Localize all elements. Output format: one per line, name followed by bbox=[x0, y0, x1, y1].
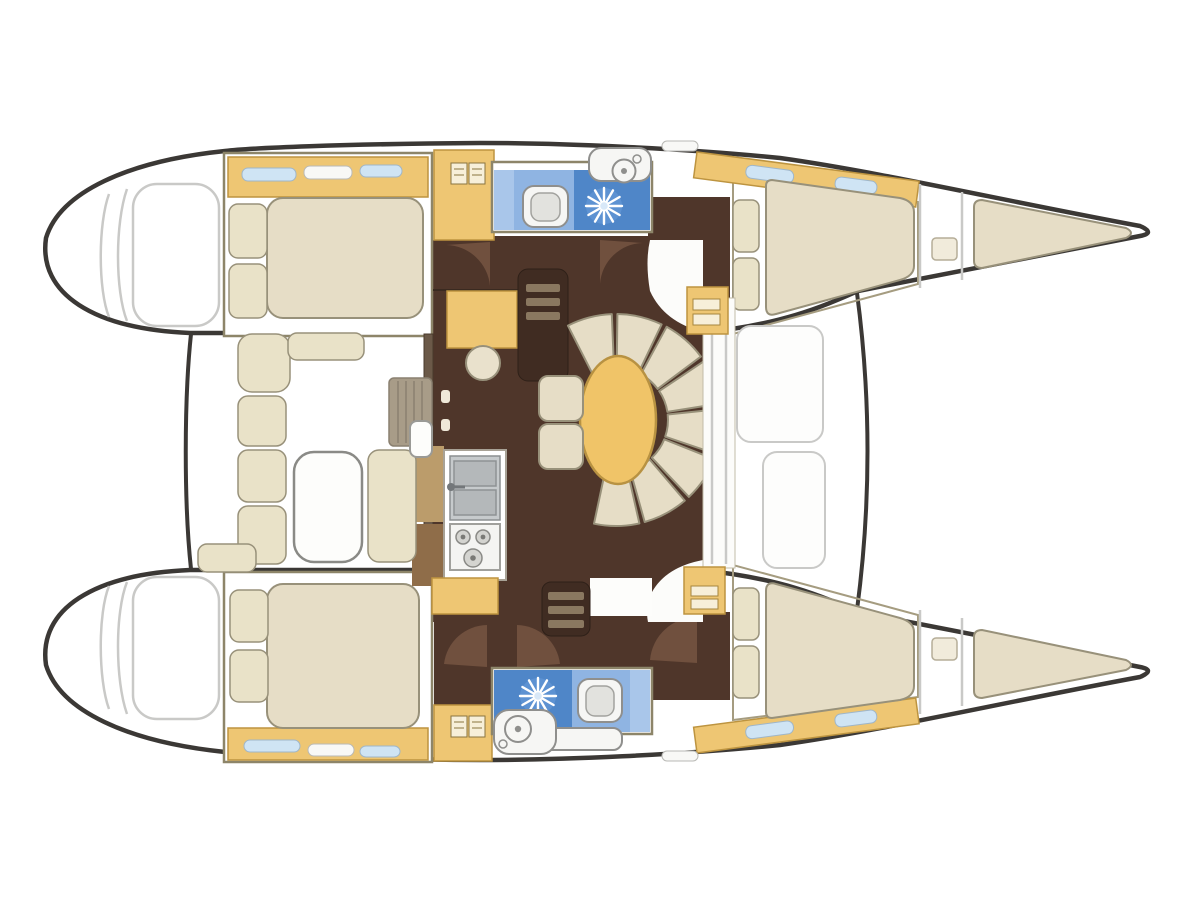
pillow bbox=[230, 650, 268, 702]
saloon-front-wall bbox=[703, 298, 735, 568]
galley-counter-wood bbox=[412, 524, 444, 586]
switch-plate bbox=[441, 419, 450, 431]
starboard-toilet-seat bbox=[586, 686, 614, 716]
starboard-fwd-berth bbox=[766, 583, 914, 718]
trampoline-panel bbox=[737, 326, 823, 442]
pillow bbox=[229, 264, 267, 318]
sink-faucet bbox=[447, 483, 455, 491]
hull-window bbox=[244, 740, 300, 752]
sink-basin bbox=[454, 461, 496, 486]
burner-center bbox=[470, 555, 476, 561]
burner-center bbox=[461, 535, 466, 540]
port-aft-cabin-bed bbox=[267, 198, 423, 318]
saloon-corner-cabinet bbox=[684, 567, 725, 614]
pillow bbox=[230, 590, 268, 642]
aft-crossbeam bbox=[186, 334, 191, 569]
catamaran-floor-plan bbox=[0, 0, 1200, 900]
cockpit-bench-cushion bbox=[238, 396, 286, 446]
cockpit-bench-top bbox=[288, 333, 364, 360]
bench-cushion bbox=[539, 424, 583, 469]
saloon-corner-cabinet bbox=[687, 287, 728, 334]
switch-plate bbox=[441, 390, 450, 403]
cockpit-bench-corner bbox=[238, 334, 290, 392]
hull-window bbox=[242, 168, 296, 181]
berth-cushion bbox=[733, 646, 759, 698]
pillow bbox=[229, 204, 267, 258]
basin-drain bbox=[621, 168, 627, 174]
cockpit bbox=[198, 333, 432, 572]
deck-hatch bbox=[662, 751, 698, 761]
forepeak-step bbox=[932, 638, 957, 660]
floor-plan-canvas bbox=[0, 0, 1200, 900]
hull-window bbox=[304, 166, 352, 179]
berth-cushion bbox=[733, 200, 759, 252]
nav-stool bbox=[466, 346, 500, 380]
saloon-steps-to-port-hull bbox=[518, 269, 568, 381]
port-fwd-berth bbox=[766, 180, 914, 315]
forepeak-step bbox=[932, 238, 957, 260]
cockpit-bench-corner bbox=[198, 544, 256, 572]
galley-cabinet bbox=[432, 578, 498, 614]
cockpit-side-seat bbox=[368, 450, 416, 562]
companionway-opening bbox=[590, 578, 652, 616]
foredeck bbox=[737, 326, 825, 568]
nav-desk bbox=[447, 291, 517, 348]
berth-cushion bbox=[733, 258, 759, 310]
cockpit-table bbox=[294, 452, 362, 562]
starboard-aft-cabin-bed bbox=[267, 584, 419, 728]
bench-cushion bbox=[539, 376, 583, 421]
basin-drain bbox=[515, 726, 521, 732]
sliding-door-leaf bbox=[410, 421, 432, 457]
sink-basin bbox=[454, 490, 496, 515]
starboard-head-floor bbox=[630, 670, 650, 732]
hull-window bbox=[360, 746, 400, 757]
saloon-table bbox=[580, 356, 656, 484]
hull-window bbox=[308, 744, 354, 756]
port-head-floor bbox=[494, 170, 514, 230]
hull-window bbox=[360, 165, 402, 177]
port-toilet-seat bbox=[531, 193, 560, 221]
deck-hatch bbox=[662, 141, 698, 151]
burner-center bbox=[481, 535, 486, 540]
trampoline-panel bbox=[763, 452, 825, 568]
berth-cushion bbox=[733, 588, 759, 640]
port-shower-drain-icon bbox=[586, 188, 622, 224]
starboard-shower-drain-icon bbox=[520, 678, 556, 714]
forward-crossbeam bbox=[857, 293, 868, 610]
cockpit-bench-cushion bbox=[238, 450, 286, 502]
